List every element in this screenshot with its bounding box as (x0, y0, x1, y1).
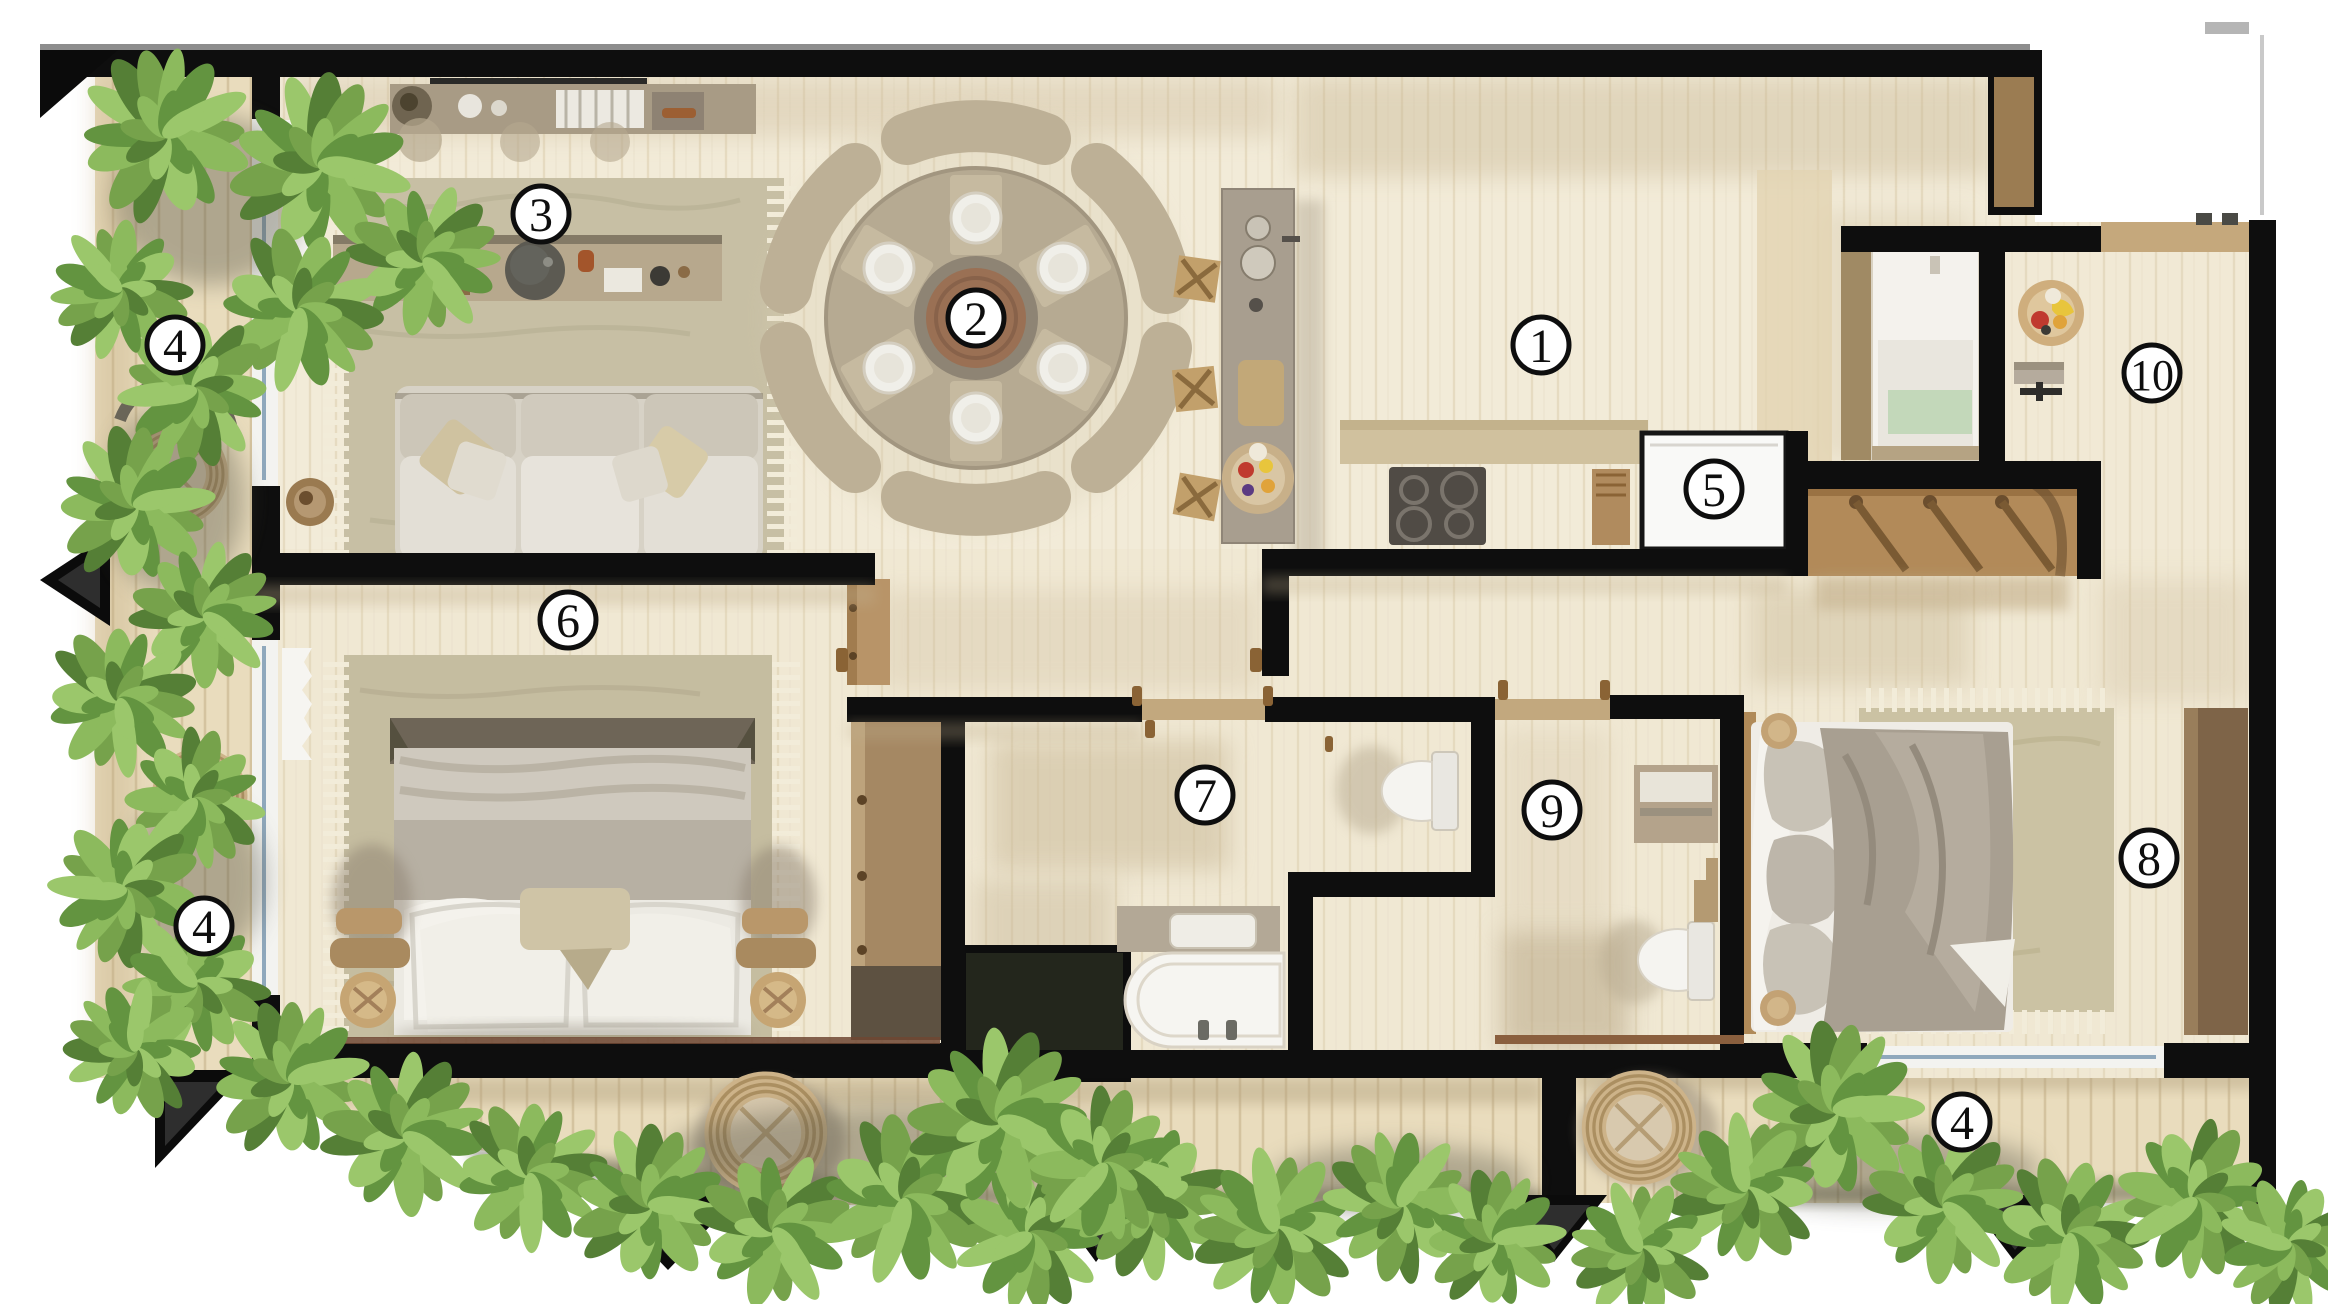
svg-text:4: 4 (192, 901, 216, 954)
svg-text:2: 2 (964, 293, 988, 346)
svg-text:4: 4 (163, 320, 187, 373)
svg-text:9: 9 (1540, 785, 1564, 838)
svg-text:4: 4 (1950, 1097, 1974, 1150)
svg-text:3: 3 (529, 189, 553, 242)
svg-text:6: 6 (556, 595, 580, 648)
svg-text:7: 7 (1193, 770, 1217, 823)
svg-text:10: 10 (2130, 351, 2174, 400)
svg-text:1: 1 (1529, 320, 1553, 373)
svg-text:8: 8 (2137, 833, 2161, 886)
svg-text:5: 5 (1702, 464, 1726, 517)
